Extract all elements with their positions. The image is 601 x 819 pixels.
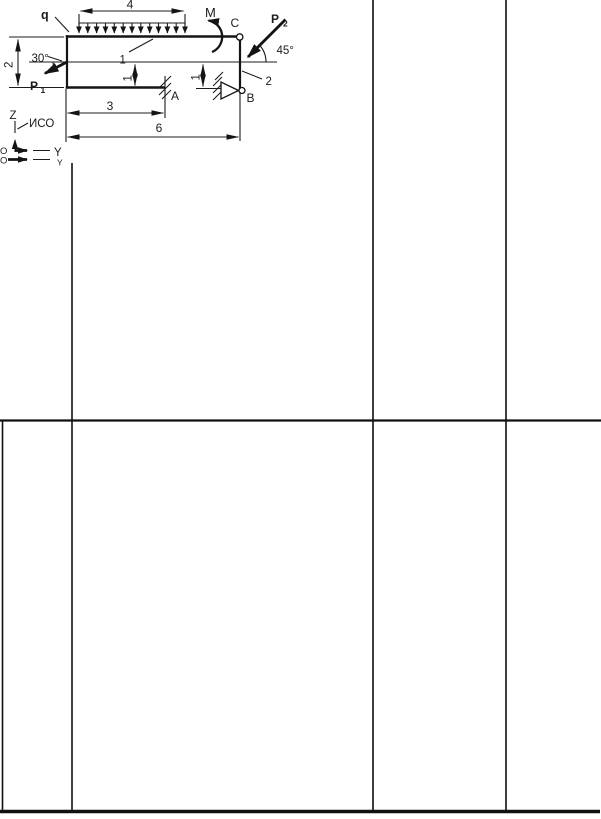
support-b-pin bbox=[239, 88, 245, 94]
table-grid bbox=[0, 0, 601, 812]
point-c-label: C bbox=[231, 16, 240, 30]
dim-6-label: 6 bbox=[156, 121, 163, 135]
dim-3-label: 3 bbox=[107, 99, 114, 113]
support-a-label: A bbox=[171, 89, 179, 103]
member-1-label: 1 bbox=[120, 55, 126, 67]
dim-1-left-label: 1 bbox=[123, 75, 135, 81]
hinge-c-circle bbox=[237, 34, 243, 40]
member-2-label: 2 bbox=[266, 76, 272, 88]
angle-30-arc bbox=[53, 62, 55, 68]
force-p1-label: P bbox=[30, 79, 38, 93]
coordinate-system: Z ИСО Y Y O O bbox=[0, 110, 63, 168]
worksheet-page: q 4 M C P 2 45° 1 2 30° P 1 bbox=[0, 0, 601, 819]
force-p2-label: P bbox=[271, 12, 279, 26]
angle-45-label: 45° bbox=[277, 45, 294, 57]
distributed-load-label: q bbox=[41, 8, 49, 22]
iso-leader bbox=[18, 123, 29, 129]
iso-frame-label: ИСО bbox=[29, 118, 54, 130]
support-a: A bbox=[159, 76, 179, 118]
axis-y-ghost-label: Y bbox=[57, 158, 63, 168]
force-p2-subscript: 2 bbox=[283, 19, 288, 29]
statics-frame-diagram: q 4 M C P 2 45° 1 2 30° P 1 bbox=[0, 0, 601, 814]
dim-4-label: 4 bbox=[127, 0, 134, 12]
dimension-bottom-long: 6 bbox=[66, 89, 239, 142]
support-b-triangle bbox=[221, 82, 239, 99]
member-1-leader bbox=[129, 39, 153, 52]
angle-30-leader bbox=[48, 57, 62, 62]
angle-30-label: 30° bbox=[32, 53, 49, 65]
q-leader-line bbox=[55, 17, 69, 32]
origin-o-ghost-label: O bbox=[0, 156, 7, 167]
force-p1-subscript: 1 bbox=[41, 85, 46, 95]
dimension-bottom-short: 3 bbox=[68, 99, 164, 113]
force-p1: 30° P 1 bbox=[30, 53, 67, 95]
member-2-leader bbox=[242, 71, 262, 79]
moment-label: M bbox=[205, 5, 216, 20]
dim-2-label: 2 bbox=[4, 62, 16, 68]
axis-z-label: Z bbox=[10, 110, 17, 122]
support-b-label: B bbox=[247, 91, 255, 105]
dimension-mid-right: 1 bbox=[191, 65, 222, 89]
distributed-load: q bbox=[41, 8, 185, 33]
dimension-mid-left: 1 bbox=[123, 65, 136, 86]
dim-1-right-label: 1 bbox=[191, 74, 203, 80]
force-p2: P 2 45° bbox=[248, 12, 294, 62]
moment-m: M bbox=[205, 5, 222, 52]
